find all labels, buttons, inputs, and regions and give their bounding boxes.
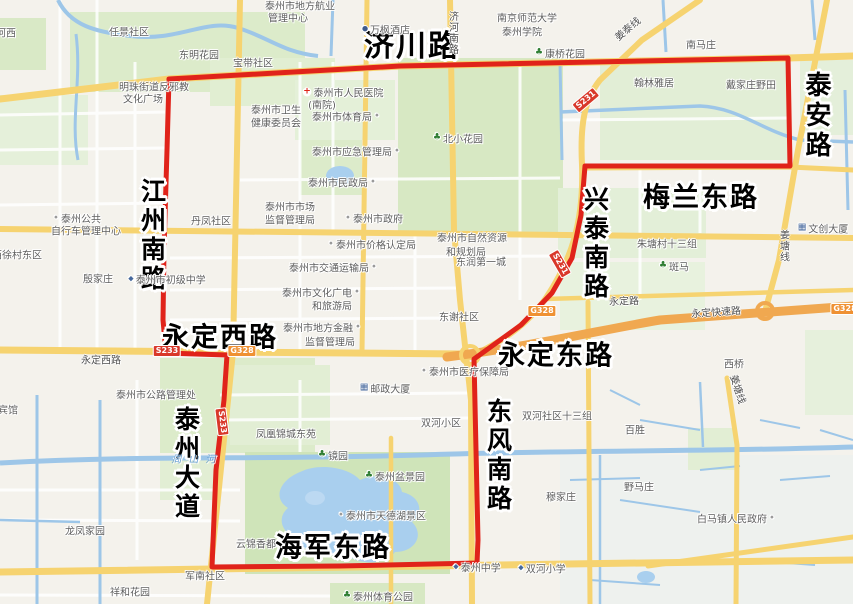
poi-label-text: 自行车管理中心	[51, 223, 121, 238]
poi-label-text: 泰州市体育局	[312, 109, 372, 124]
poi-label-text: 监督管理局	[265, 212, 315, 227]
poi-label-text: 泰州市应急管理局	[312, 144, 392, 159]
poi-label: ◆泰州市初级中学	[128, 272, 205, 287]
road-label-major: 梅兰东路	[643, 183, 759, 212]
hospital-icon: +	[303, 88, 312, 97]
poi-label: 泰州市地方金融•	[283, 320, 361, 335]
poi-label: 朱塘村十三组	[637, 236, 697, 251]
poi-label-text: 文创大厦	[808, 221, 848, 236]
poi-label-text: 南京师范大学	[497, 10, 557, 25]
road-badge: G328	[227, 345, 256, 357]
poi-label-text: 祥和花园	[110, 584, 150, 599]
dot-icon: •	[328, 239, 334, 249]
poi-label: 殷家庄	[83, 271, 113, 286]
poi-label-text: 龙凤家园	[65, 523, 105, 538]
poi-label: 东谢社区	[439, 309, 479, 324]
road-badge: S233	[153, 345, 181, 357]
poi-label-text: 泰州市公路管理处	[116, 387, 196, 402]
road-name-label: 永定路	[609, 292, 640, 308]
poi-label-text: 万枫酒店	[370, 22, 410, 37]
poi-label-text: 泰州市民政局	[308, 175, 368, 190]
poi-label: •泰州市价格认定局	[328, 237, 416, 252]
poi-label: ◆泰州中学	[453, 560, 500, 575]
tree-icon: ♣	[659, 262, 667, 271]
poi-label: 监督管理局	[305, 334, 355, 349]
road-label-major: 永定东路	[498, 341, 614, 370]
poi-label: 穆家庄	[546, 489, 576, 504]
poi-label: •泰州市政府	[345, 211, 403, 226]
poi-label-text: 管理中心	[268, 10, 308, 25]
poi-label-text: 文化广场	[123, 91, 163, 106]
poi-label: ♣镜园	[318, 448, 348, 463]
poi-label-text: 东谢社区	[439, 309, 479, 324]
dot-icon: •	[355, 322, 361, 332]
poi-label: 丹凤社区	[191, 213, 231, 228]
poi-label-text: 云锦香都	[236, 536, 276, 551]
dot-icon: •	[53, 213, 59, 223]
poi-label: 双河小区	[421, 415, 461, 430]
poi-label: 军南社区	[185, 568, 225, 583]
poi-label: 河西	[0, 25, 16, 40]
poi-label-text: 泰州学院	[502, 24, 542, 39]
poi-label: 西桥	[724, 356, 744, 371]
poi-label: 双河社区十三组	[522, 408, 592, 423]
poi-label-text: 泰州市交通运输局	[289, 260, 369, 275]
labels-layer: 济川路泰安路江州南路兴泰南路梅兰东路永定西路永定东路泰州大道东风南路海军东路任景…	[0, 0, 853, 604]
poi-label: ▦邮政大厦	[360, 381, 411, 396]
poi-label-text: 白马镇人民政府	[697, 511, 767, 526]
poi-label: ♣泰州体育公园	[343, 589, 413, 604]
poi-label: 云锦香都	[236, 536, 276, 551]
road-name-label: 永定快速路	[691, 302, 742, 320]
poi-label-text: 百胜	[625, 422, 645, 437]
poi-label: ●万枫酒店	[362, 22, 410, 37]
water-label: 周山河	[172, 451, 223, 466]
poi-label: 东明花园	[179, 47, 219, 62]
poi-label: 泰州市体育局•	[312, 109, 380, 124]
poi-label: ♣北小花园	[433, 131, 483, 146]
poi-label: •泰州市医疗保障局	[421, 364, 509, 379]
poi-label: 泰州市民政局•	[308, 175, 376, 190]
poi-label-text: 泰州市天德湖景区	[346, 508, 426, 523]
poi-label-text: 凤凰锦城东苑	[256, 426, 316, 441]
poi-label-text: 双河社区十三组	[522, 408, 592, 423]
poi-label: 泰州市应急管理局•	[312, 144, 400, 159]
poi-label-text: 东润第一城	[456, 254, 506, 269]
poi-label-text: 双河小区	[421, 415, 461, 430]
poi-label-text: 镜园	[328, 448, 348, 463]
poi-label-text: 西徐村东区	[0, 247, 42, 262]
poi-label: 泰州市公路管理处	[116, 387, 196, 402]
tree-icon: ♣	[365, 472, 373, 481]
poi-label: •泰州市天德湖景区	[338, 508, 426, 523]
poi-label-text: 泰州体育公园	[353, 589, 413, 604]
poi-label-text: 泰州盆景园	[375, 469, 425, 484]
poi-label: 泰州市自然资源	[437, 230, 507, 245]
poi-label-text: 和旅游局	[312, 298, 352, 313]
poi-label: 健康委员会	[251, 115, 301, 130]
road-label-major: 泰安路	[802, 71, 830, 161]
poi-label-text: 泰州市医疗保障局	[429, 364, 509, 379]
road-name-label: 姜塘线	[776, 230, 791, 263]
poi-label-text: 北小花园	[443, 131, 483, 146]
tree-icon: ♣	[318, 451, 326, 460]
poi-label-text: 军南社区	[185, 568, 225, 583]
poi-label: 南京师范大学	[497, 10, 557, 25]
dot-icon: •	[338, 510, 344, 520]
poi-label: 任景社区	[109, 24, 149, 39]
dot-icon: •	[354, 287, 360, 297]
road-label-major: 东风南路	[485, 398, 512, 514]
poi-label: 宾馆	[0, 402, 18, 417]
building-icon: ▦	[798, 224, 807, 233]
tree-icon: ♣	[433, 134, 441, 143]
road-label-major: 海军东路	[275, 533, 391, 562]
poi-label-text: 宾馆	[0, 402, 18, 417]
poi-label: 自行车管理中心	[51, 223, 121, 238]
school-icon: ◆	[128, 276, 133, 283]
poi-label: 戴家庄野田	[726, 77, 776, 92]
poi-label: ♣斑马	[659, 259, 689, 274]
dot-icon: •	[371, 262, 377, 272]
dot-icon: •	[769, 513, 775, 523]
road-name-label: 姜泰线	[611, 13, 644, 44]
poi-label: 西徐村东区	[0, 247, 42, 262]
poi-label: 白马镇人民政府•	[697, 511, 775, 526]
poi-label-text: 南马庄	[686, 37, 716, 52]
poi-label: ♣泰州盆景园	[365, 469, 425, 484]
school-icon: ◆	[518, 565, 523, 572]
poi-label: 翰林雅居	[634, 75, 674, 90]
poi-label: ♣康桥花园	[535, 46, 585, 61]
poi-label: 南马庄	[686, 37, 716, 52]
poi-label: 野马庄	[624, 479, 654, 494]
poi-label: 龙凤家园	[65, 523, 105, 538]
poi-label: 泰州市交通运输局•	[289, 260, 377, 275]
poi-label: 管理中心	[268, 10, 308, 25]
road-badge: G328	[527, 305, 556, 317]
poi-label-text: 宝带社区	[233, 55, 273, 70]
poi-label-text: 泰州市初级中学	[136, 272, 206, 287]
poi-label-text: 斑马	[669, 259, 689, 274]
poi-label: 宝带社区	[233, 55, 273, 70]
road-badge: S231	[548, 249, 573, 280]
poi-label-text: 泰州市政府	[353, 211, 403, 226]
poi-label-text: 西桥	[724, 356, 744, 371]
road-name-label: 姜塘线	[727, 372, 751, 405]
poi-label-text: 穆家庄	[546, 489, 576, 504]
poi-label-text: 泰州市价格认定局	[336, 237, 416, 252]
poi-label-text: 东明花园	[179, 47, 219, 62]
dot-icon: •	[374, 111, 380, 121]
poi-label-text: 泰州市自然资源	[437, 230, 507, 245]
poi-label-text: 康桥花园	[545, 46, 585, 61]
poi-label: 和旅游局	[312, 298, 352, 313]
road-badge: S231	[571, 86, 601, 113]
poi-label: 监督管理局	[265, 212, 315, 227]
poi-label: ◆双河小学	[518, 561, 565, 576]
tree-icon: ♣	[343, 592, 351, 601]
dot-icon: •	[345, 213, 351, 223]
poi-label-text: 健康委员会	[251, 115, 301, 130]
poi-label: ▦文创大厦	[798, 221, 849, 236]
poi-label-text: 监督管理局	[305, 334, 355, 349]
road-name-label: 济河南路	[445, 11, 460, 55]
road-name-label: 永定西路	[81, 352, 121, 367]
poi-label-text: 殷家庄	[83, 271, 113, 286]
poi-label: 东润第一城	[456, 254, 506, 269]
poi-label-text: 朱塘村十三组	[637, 236, 697, 251]
road-label-major: 兴泰南路	[582, 186, 609, 302]
poi-label: 祥和花园	[110, 584, 150, 599]
poi-label-text: 丹凤社区	[191, 213, 231, 228]
dot-icon: •	[394, 146, 400, 156]
poi-label-text: 双河小学	[526, 561, 566, 576]
poi-label-text: 戴家庄野田	[726, 77, 776, 92]
poi-label: 泰州学院	[502, 24, 542, 39]
road-badge: S233	[214, 407, 229, 437]
map-canvas[interactable]: 济川路泰安路江州南路兴泰南路梅兰东路永定西路永定东路泰州大道东风南路海军东路任景…	[0, 0, 853, 604]
road-badge: G328	[830, 303, 853, 315]
hotel-icon: ●	[362, 26, 368, 33]
poi-label-text: 翰林雅居	[634, 75, 674, 90]
poi-label-text: 野马庄	[624, 479, 654, 494]
school-icon: ◆	[453, 564, 458, 571]
poi-label: 百胜	[625, 422, 645, 437]
poi-label: 凤凰锦城东苑	[256, 426, 316, 441]
dot-icon: •	[421, 366, 427, 376]
poi-label-text: 泰州中学	[461, 560, 501, 575]
poi-label-text: 任景社区	[109, 24, 149, 39]
tree-icon: ♣	[535, 49, 543, 58]
poi-label-text: 邮政大厦	[370, 381, 410, 396]
building-icon: ▦	[360, 384, 369, 393]
poi-label: 文化广场	[123, 91, 163, 106]
dot-icon: •	[370, 177, 376, 187]
poi-label-text: 河西	[0, 25, 16, 40]
poi-label-text: 泰州市地方金融	[283, 320, 353, 335]
